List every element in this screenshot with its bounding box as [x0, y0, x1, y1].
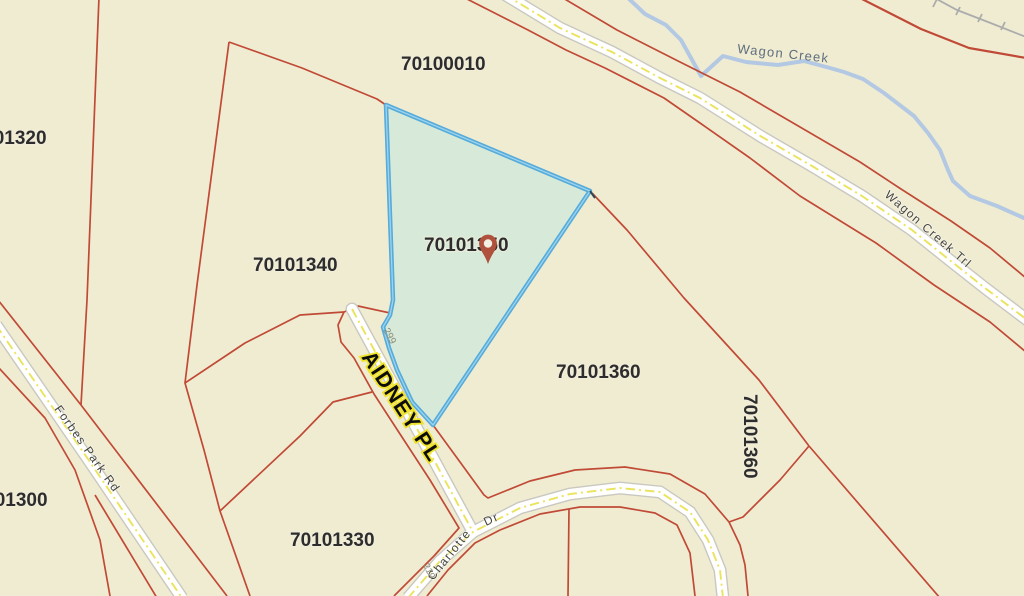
svg-text:70100010: 70100010 [401, 54, 486, 75]
svg-text:70101360: 70101360 [739, 394, 760, 479]
svg-text:70101360: 70101360 [556, 362, 641, 383]
svg-text:70101320: 70101320 [0, 128, 47, 149]
svg-text:70101300: 70101300 [0, 490, 48, 511]
svg-text:70101330: 70101330 [290, 530, 375, 551]
svg-text:70101340: 70101340 [253, 255, 338, 276]
